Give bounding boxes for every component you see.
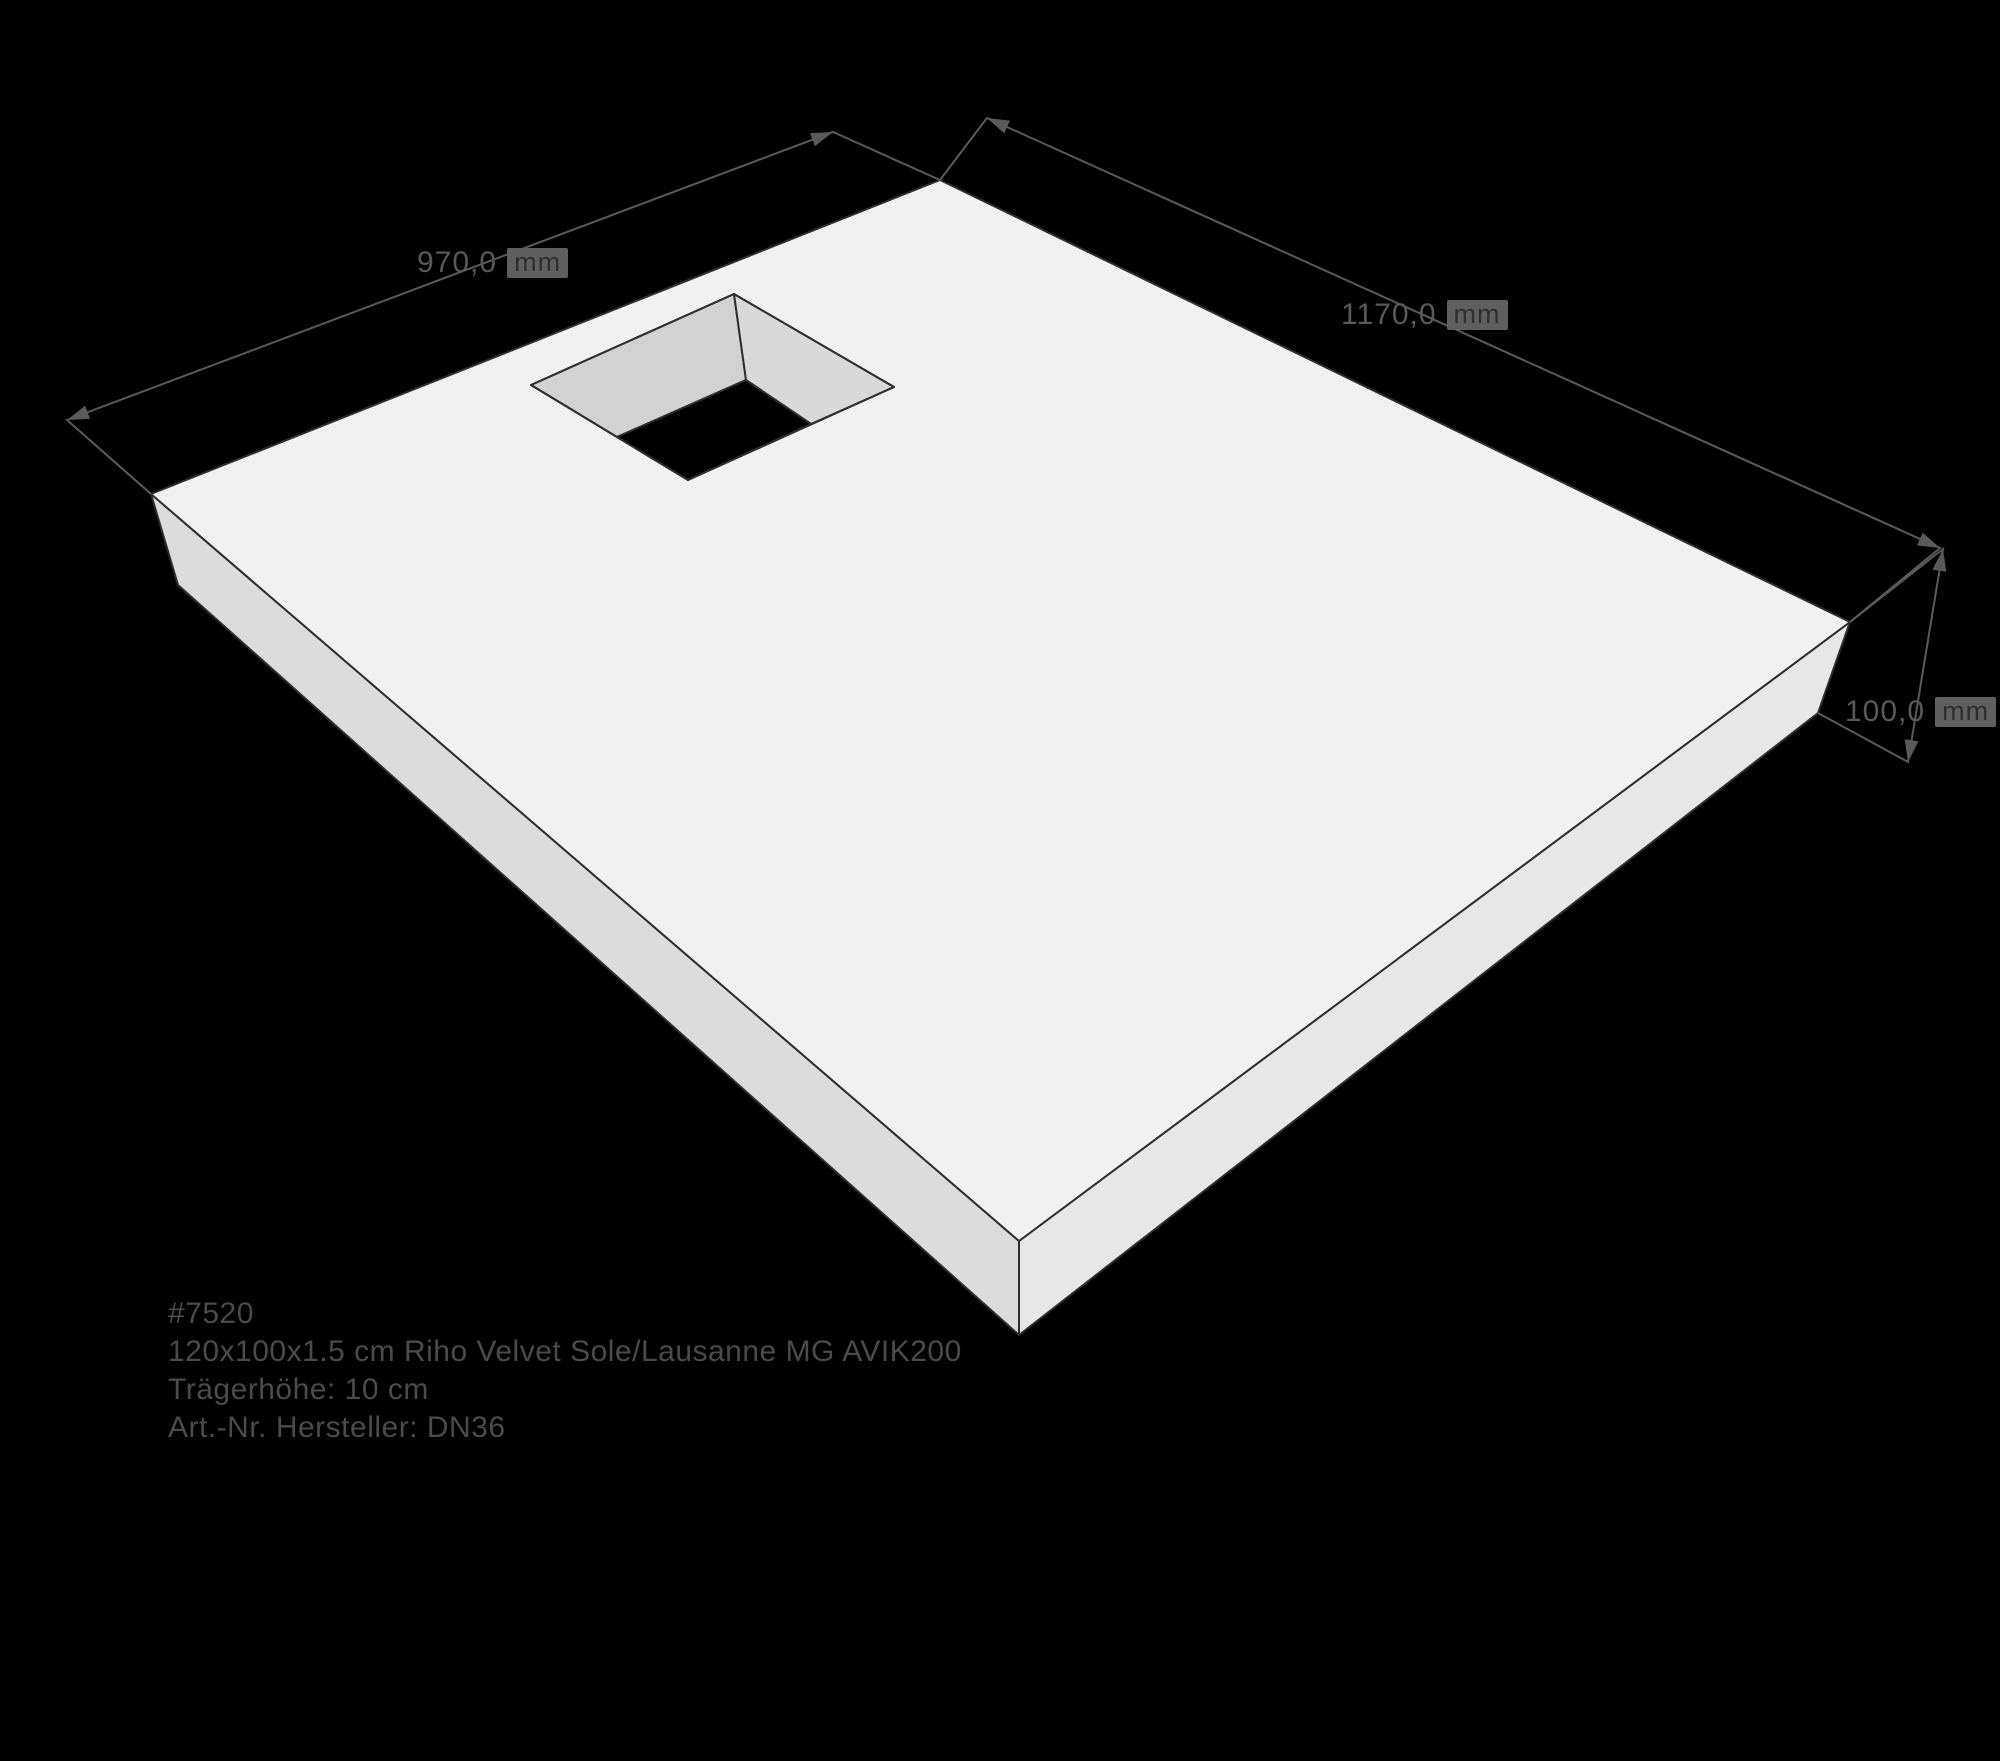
product-diagram-svg	[0, 0, 2000, 1761]
dimension-height-label: 100,0 mm	[1845, 695, 1996, 729]
dimension-width-unit: mm	[507, 248, 568, 278]
product-carrier-height: Trägerhöhe: 10 cm	[168, 1371, 962, 1409]
diagram-stage: 970,0 mm 1170,0 mm 100,0 mm #7520 120x10…	[0, 0, 2000, 1761]
product-article-number: Art.-Nr. Hersteller: DN36	[168, 1409, 962, 1447]
product-id: #7520	[168, 1295, 962, 1333]
product-info-block: #7520 120x100x1.5 cm Riho Velvet Sole/La…	[168, 1295, 962, 1447]
dimension-length-unit: mm	[1447, 300, 1508, 330]
dimension-arrow	[1917, 533, 1940, 548]
dimension-height-value: 100,0	[1845, 695, 1925, 729]
slab-top-face	[151, 180, 1850, 1241]
dimension-length-value: 1170,0	[1341, 298, 1437, 332]
dimension-width-label: 970,0 mm	[417, 246, 568, 280]
dimension-arrow	[987, 118, 1010, 133]
dimension-width-value: 970,0	[417, 246, 497, 280]
dimension-length-label: 1170,0 mm	[1341, 298, 1508, 332]
dimension-arrow	[1905, 739, 1919, 762]
dimension-arrow	[810, 132, 833, 146]
product-description: 120x100x1.5 cm Riho Velvet Sole/Lausanne…	[168, 1333, 962, 1371]
dimension-height-unit: mm	[1935, 697, 1996, 727]
dimension-arrow	[67, 406, 90, 420]
slab	[151, 180, 1850, 1335]
